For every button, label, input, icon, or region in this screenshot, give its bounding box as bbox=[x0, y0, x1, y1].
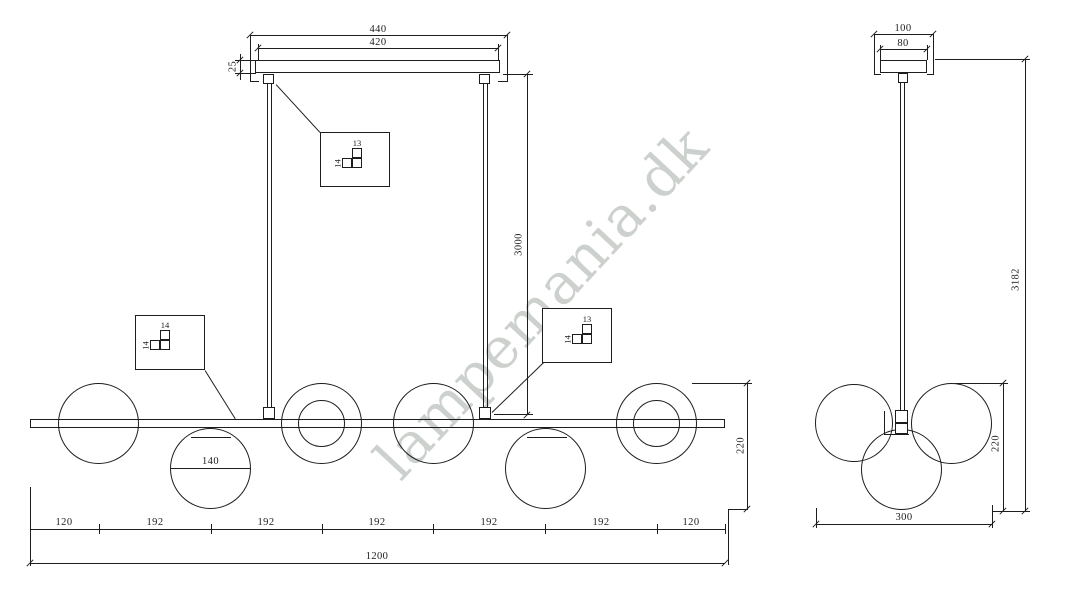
detail-part bbox=[160, 330, 170, 340]
hub-connector bbox=[895, 423, 908, 434]
front-canopy bbox=[255, 60, 500, 73]
dim-label-fixture-width: 300 bbox=[882, 512, 926, 523]
dim-label-height-front: 220 bbox=[736, 431, 747, 461]
dim-line-3182 bbox=[1025, 59, 1026, 512]
rod-connector bbox=[898, 73, 908, 83]
dim-line-220-front bbox=[747, 383, 748, 510]
sphere-low bbox=[505, 428, 586, 509]
suspension-rod bbox=[487, 84, 488, 408]
dim-line-220-side bbox=[1003, 383, 1004, 511]
hub-connector bbox=[895, 410, 908, 423]
drawing-layer: 440 420 25 3000 bbox=[0, 0, 1065, 597]
detail-label: 14 bbox=[155, 321, 175, 330]
dim-tick bbox=[322, 524, 323, 534]
detail-label: 13 bbox=[347, 139, 367, 148]
dim-line-3000 bbox=[527, 74, 528, 415]
detail-part bbox=[352, 148, 362, 158]
ext-line bbox=[728, 509, 729, 565]
rod-connector bbox=[263, 407, 275, 419]
sphere-front-inner bbox=[633, 400, 680, 447]
ext-line bbox=[992, 511, 1030, 512]
dim-line-100 bbox=[874, 34, 933, 35]
detail-part bbox=[582, 334, 592, 344]
detail-part bbox=[342, 158, 352, 168]
sphere-neck-line bbox=[191, 437, 231, 438]
ext-line bbox=[250, 35, 251, 82]
sphere-neck-line bbox=[527, 437, 567, 438]
hub-line bbox=[884, 434, 909, 435]
detail-label: 14 bbox=[142, 337, 151, 355]
dim-label-side-canopy-outer: 100 bbox=[878, 23, 928, 34]
detail-part bbox=[160, 340, 170, 350]
detail-label: 13 bbox=[577, 315, 597, 324]
leader-line bbox=[276, 84, 321, 133]
ext-line bbox=[503, 74, 533, 75]
dim-tick bbox=[211, 524, 212, 534]
dim-line-1200 bbox=[30, 563, 725, 564]
dim-line-420 bbox=[258, 48, 498, 49]
dim-line-spacing bbox=[30, 529, 725, 530]
dim-label-rod-length: 3000 bbox=[514, 225, 525, 265]
ext-line bbox=[933, 34, 934, 75]
suspension-rod bbox=[904, 83, 905, 410]
ext-line bbox=[498, 81, 507, 82]
dim-label-sphere-diameter: 140 bbox=[190, 456, 231, 467]
suspension-rod bbox=[271, 84, 272, 408]
ext-line bbox=[935, 59, 1030, 60]
sphere-side-low bbox=[861, 429, 942, 510]
ext-line bbox=[874, 74, 881, 75]
rod-connector bbox=[263, 74, 274, 84]
leader-line bbox=[204, 370, 235, 419]
hub-line bbox=[884, 411, 885, 434]
ext-line bbox=[498, 44, 499, 60]
dim-tick bbox=[657, 524, 658, 534]
dim-label-segment: 120 bbox=[44, 517, 84, 528]
dim-tick bbox=[433, 524, 434, 534]
detail-label: 14 bbox=[334, 155, 343, 173]
detail-part bbox=[582, 324, 592, 334]
rod-connector bbox=[479, 74, 490, 84]
dim-label-total-length: 1200 bbox=[355, 551, 399, 562]
side-canopy bbox=[880, 60, 927, 73]
dim-label-side-canopy-inner: 80 bbox=[878, 38, 928, 49]
dim-label-segment: 192 bbox=[469, 517, 509, 528]
dim-line-80 bbox=[880, 49, 927, 50]
dim-label-segment: 192 bbox=[246, 517, 286, 528]
dim-label-segment: 192 bbox=[581, 517, 621, 528]
ext-line bbox=[692, 383, 752, 384]
sphere bbox=[393, 383, 474, 464]
dim-line-440 bbox=[250, 35, 507, 36]
suspension-rod bbox=[483, 84, 484, 408]
dim-label-height-side: 220 bbox=[991, 429, 1002, 459]
sphere bbox=[58, 383, 139, 464]
detail-part bbox=[150, 340, 160, 350]
suspension-rod bbox=[900, 83, 901, 410]
dim-label-total-height: 3182 bbox=[1011, 260, 1022, 300]
dim-label-canopy-inner: 420 bbox=[353, 37, 403, 48]
dim-tick bbox=[725, 524, 726, 534]
dim-label-segment: 120 bbox=[671, 517, 711, 528]
dim-tick bbox=[30, 524, 31, 534]
dim-line-300 bbox=[816, 524, 992, 525]
rod-connector bbox=[479, 407, 491, 419]
sphere-diameter-line bbox=[170, 468, 251, 469]
ext-line bbox=[927, 74, 934, 75]
ext-line bbox=[874, 34, 875, 75]
detail-part bbox=[352, 158, 362, 168]
technical-drawing-canvas: lampemania.dk 440 420 25 bbox=[0, 0, 1065, 597]
dim-label-canopy-outer: 440 bbox=[353, 24, 403, 35]
dim-tick bbox=[99, 524, 100, 534]
detail-label: 14 bbox=[564, 331, 573, 349]
suspension-rod bbox=[267, 84, 268, 408]
sphere-front-inner bbox=[298, 400, 345, 447]
leader-line bbox=[492, 362, 545, 413]
ext-line bbox=[258, 44, 259, 60]
dim-label-segment: 192 bbox=[135, 517, 175, 528]
ext-line bbox=[250, 81, 259, 82]
detail-part bbox=[572, 334, 582, 344]
ext-line bbox=[728, 509, 748, 510]
dim-tick bbox=[545, 524, 546, 534]
dim-label-canopy-height: 25 bbox=[228, 55, 239, 79]
dim-label-segment: 192 bbox=[357, 517, 397, 528]
